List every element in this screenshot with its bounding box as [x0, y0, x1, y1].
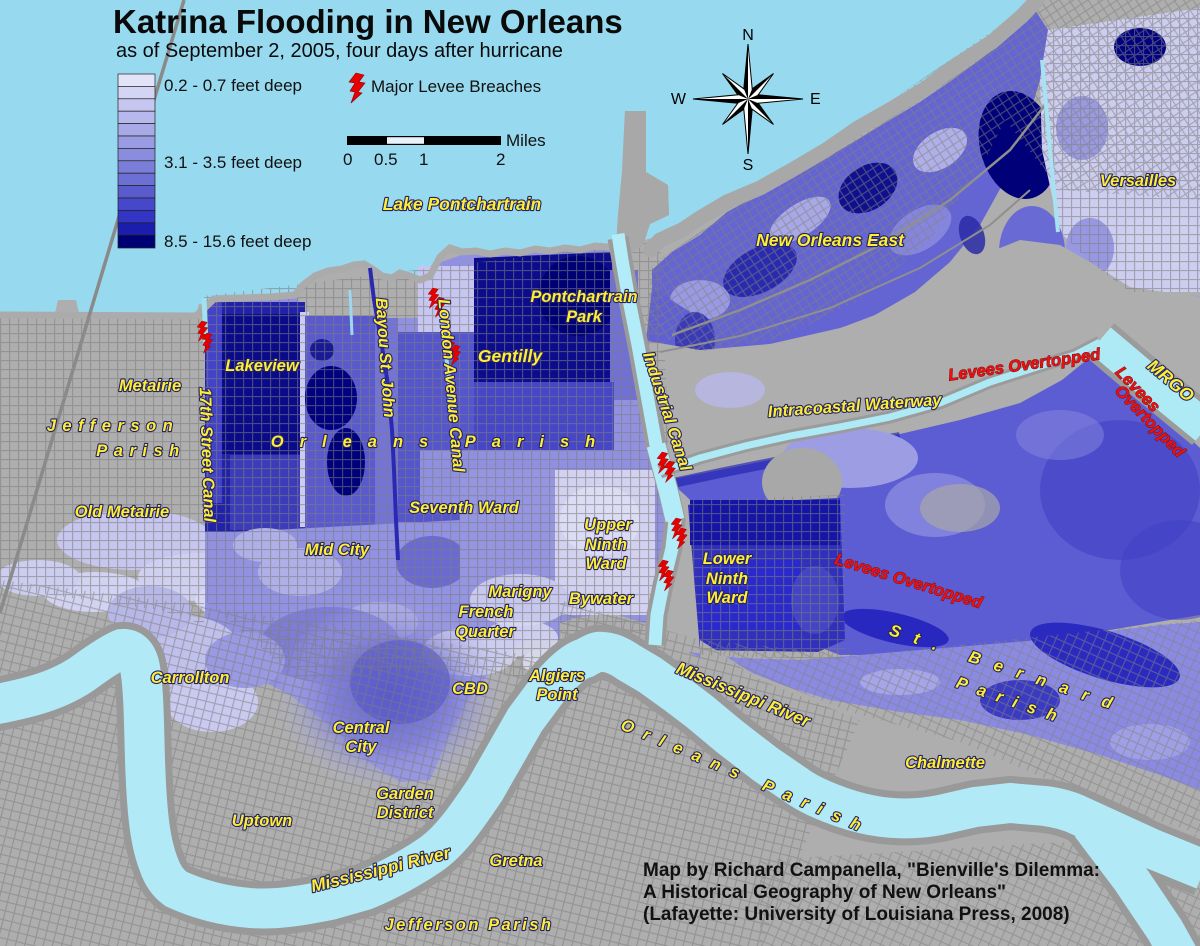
svg-text:City: City — [345, 738, 377, 756]
svg-text:Katrina Flooding in New Orlean: Katrina Flooding in New Orleans — [113, 3, 623, 40]
svg-text:Lower: Lower — [703, 550, 753, 568]
svg-text:Lakeview: Lakeview — [225, 357, 300, 375]
svg-text:Metairie: Metairie — [119, 377, 181, 395]
svg-text:Gretna: Gretna — [489, 852, 542, 870]
svg-text:New Orleans East: New Orleans East — [756, 230, 905, 250]
svg-text:Lake Pontchartrain: Lake Pontchartrain — [383, 194, 542, 214]
svg-text:Orleans Parish: Orleans Parish — [271, 433, 611, 451]
svg-text:Versailles: Versailles — [1100, 172, 1176, 190]
svg-text:Ward: Ward — [707, 589, 749, 607]
svg-text:1: 1 — [419, 150, 428, 169]
svg-text:Miles: Miles — [506, 131, 546, 150]
svg-text:District: District — [377, 804, 435, 822]
svg-text:Major Levee Breaches: Major Levee Breaches — [371, 77, 541, 96]
svg-text:Central: Central — [333, 719, 390, 737]
svg-text:Ninth: Ninth — [585, 536, 627, 554]
svg-text:Gentilly: Gentilly — [478, 346, 543, 366]
svg-text:Map by Richard Campanella, "Bi: Map by Richard Campanella, "Bienville's … — [643, 860, 1100, 881]
svg-text:Upper: Upper — [584, 516, 633, 534]
svg-text:E: E — [810, 91, 821, 108]
svg-text:Chalmette: Chalmette — [905, 754, 985, 772]
svg-text:French: French — [458, 603, 513, 621]
svg-text:Parish: Parish — [96, 442, 185, 460]
svg-text:Park: Park — [566, 308, 603, 326]
svg-text:as of September 2, 2005, four: as of September 2, 2005, four days after… — [116, 40, 563, 62]
svg-text:0.2 - 0.7 feet deep: 0.2 - 0.7 feet deep — [164, 76, 302, 95]
svg-text:Pontchartrain: Pontchartrain — [530, 288, 637, 306]
svg-text:(Lafayette: University of Loui: (Lafayette: University of Louisiana Pres… — [643, 904, 1070, 925]
svg-text:3.1 - 3.5 feet deep: 3.1 - 3.5 feet deep — [164, 153, 302, 172]
svg-text:2: 2 — [496, 150, 505, 169]
svg-text:Point: Point — [536, 686, 579, 704]
svg-text:Algiers: Algiers — [528, 667, 585, 685]
svg-text:A Historical Geography of New: A Historical Geography of New Orleans" — [643, 882, 1006, 903]
svg-text:Garden: Garden — [376, 785, 434, 803]
svg-text:Carrollton: Carrollton — [151, 669, 230, 687]
svg-text:Jefferson Parish: Jefferson Parish — [384, 916, 553, 934]
svg-text:Mid City: Mid City — [305, 541, 370, 559]
svg-text:Quarter: Quarter — [455, 623, 516, 641]
svg-text:Jefferson: Jefferson — [47, 417, 179, 435]
svg-text:N: N — [742, 27, 754, 44]
svg-text:0: 0 — [343, 150, 352, 169]
svg-text:8.5 - 15.6 feet deep: 8.5 - 15.6 feet deep — [164, 232, 311, 251]
svg-text:S: S — [743, 157, 754, 174]
svg-text:Seventh Ward: Seventh Ward — [409, 499, 520, 517]
svg-text:Ninth: Ninth — [706, 570, 748, 588]
svg-text:Uptown: Uptown — [232, 812, 292, 830]
svg-text:Marigny: Marigny — [488, 583, 552, 601]
svg-text:CBD: CBD — [452, 680, 488, 698]
svg-text:Ward: Ward — [586, 555, 628, 573]
svg-text:W: W — [671, 91, 687, 108]
svg-text:0.5: 0.5 — [374, 150, 398, 169]
svg-text:Bywater: Bywater — [569, 590, 635, 608]
svg-text:Old Metairie: Old Metairie — [75, 503, 169, 521]
